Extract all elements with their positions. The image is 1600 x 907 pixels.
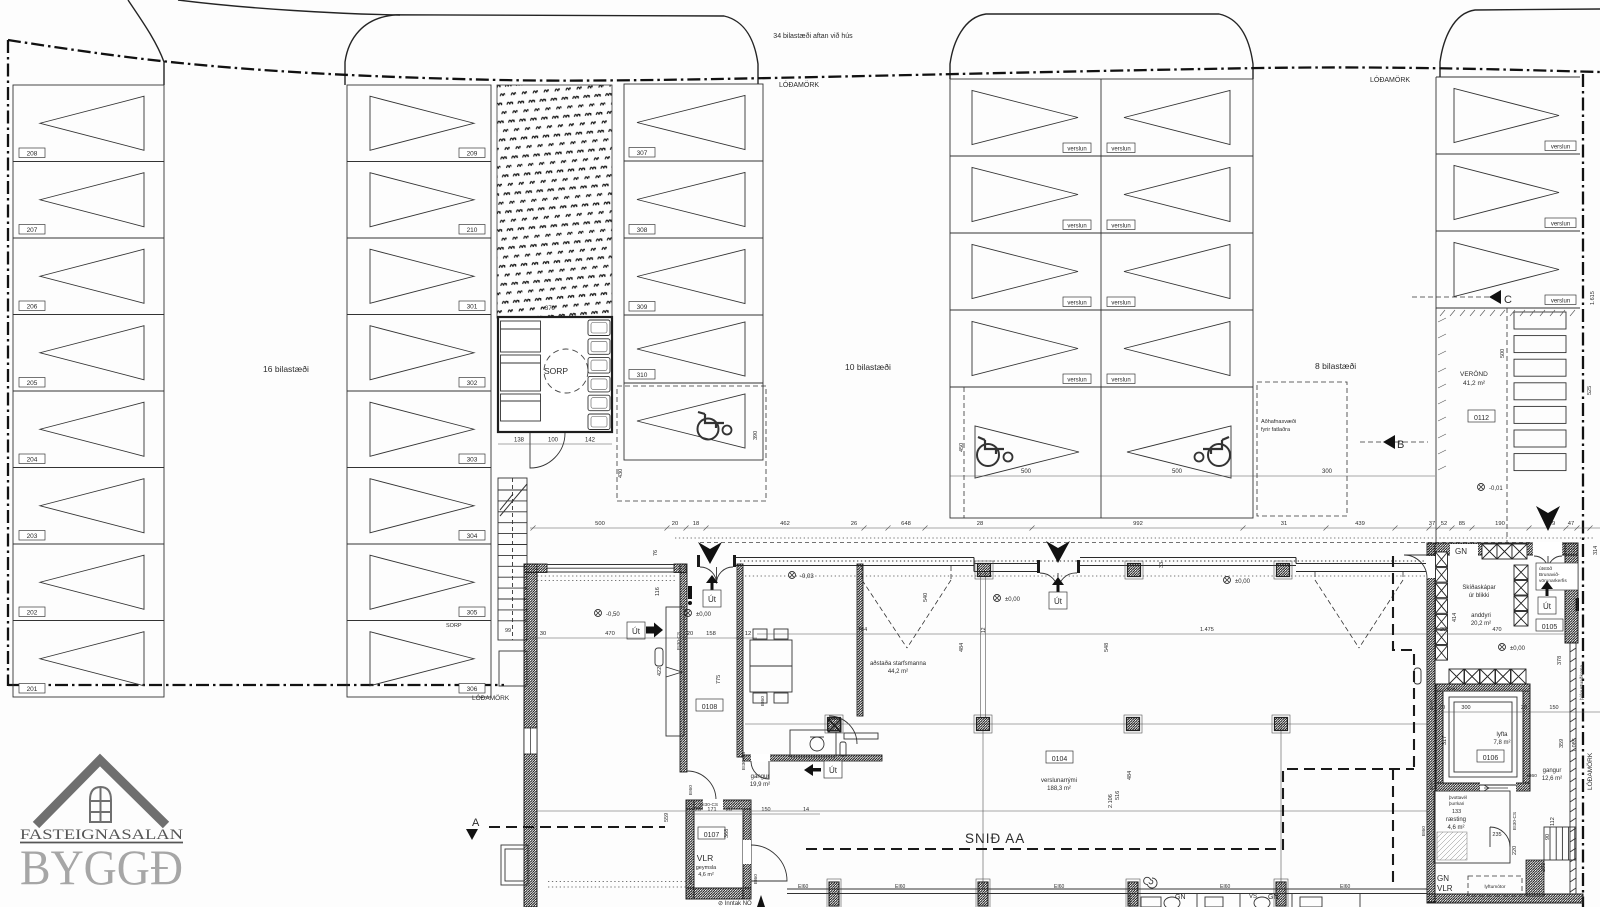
svg-text:VS: VS (1249, 894, 1257, 900)
svg-text:414: 414 (1452, 613, 1458, 622)
svg-text:SORP: SORP (544, 366, 568, 376)
svg-text:462: 462 (780, 521, 790, 527)
svg-text:378: 378 (1557, 656, 1563, 665)
svg-text:verslun: verslun (1111, 300, 1130, 306)
svg-text:8 bilastæði: 8 bilastæði (1315, 361, 1356, 371)
svg-text:203: 203 (27, 533, 38, 540)
svg-text:1.475: 1.475 (1200, 627, 1214, 633)
svg-text:47: 47 (1568, 521, 1574, 527)
svg-text:verslun: verslun (1111, 146, 1130, 152)
svg-text:20: 20 (1521, 705, 1527, 711)
svg-text:EI60: EI60 (753, 874, 759, 884)
svg-text:500: 500 (1500, 349, 1506, 358)
svg-text:309: 309 (637, 304, 648, 311)
svg-text:12,6 m²: 12,6 m² (1542, 776, 1562, 782)
svg-text:205: 205 (27, 380, 38, 387)
svg-text:310: 310 (637, 372, 648, 379)
svg-text:SORP: SORP (446, 623, 462, 629)
svg-text:484: 484 (959, 643, 965, 652)
svg-text:317: 317 (1442, 736, 1448, 745)
svg-text:300: 300 (1322, 469, 1333, 475)
svg-text:500: 500 (595, 521, 605, 527)
svg-text:306: 306 (467, 686, 478, 693)
svg-text:235: 235 (1492, 832, 1501, 838)
svg-text:EI60: EI60 (1429, 700, 1435, 710)
svg-text:100: 100 (548, 438, 559, 444)
svg-text:158: 158 (706, 631, 716, 637)
svg-text:4,6 m²: 4,6 m² (1447, 825, 1464, 831)
svg-text:784: 784 (858, 627, 867, 633)
svg-text:390: 390 (753, 431, 759, 440)
svg-text:verslun: verslun (1551, 298, 1570, 304)
svg-text:430: 430 (618, 469, 624, 478)
svg-text:fyrir fatlaðra: fyrir fatlaðra (1261, 426, 1291, 433)
svg-text:-0,01: -0,01 (1489, 486, 1503, 492)
svg-text:úr blikki: úr blikki (1469, 593, 1489, 599)
svg-text:LÓÐAMÖRK: LÓÐAMÖRK (779, 80, 819, 89)
svg-text:470: 470 (1492, 627, 1501, 633)
svg-text:LÓÐAMÖRK: LÓÐAMÖRK (1585, 752, 1594, 790)
svg-text:EI60: EI60 (1340, 884, 1351, 890)
svg-text:150: 150 (1549, 705, 1558, 711)
svg-text:10 bilastæði: 10 bilastæði (845, 362, 891, 372)
svg-text:EI60: EI60 (1421, 826, 1427, 836)
svg-text:142: 142 (585, 438, 596, 444)
svg-text:188,3 m²: 188,3 m² (1047, 786, 1071, 792)
svg-text:EI60: EI60 (1220, 884, 1231, 890)
svg-text:648: 648 (901, 521, 911, 527)
svg-text:305: 305 (467, 609, 478, 616)
svg-text:76: 76 (653, 550, 659, 556)
svg-text:SNIÐ AA: SNIÐ AA (965, 831, 1025, 846)
svg-text:500: 500 (1021, 469, 1032, 475)
svg-text:EI30-CS: EI30-CS (741, 752, 747, 770)
svg-text:20: 20 (695, 807, 701, 813)
svg-text:20: 20 (1440, 627, 1446, 633)
svg-text:301: 301 (467, 303, 478, 310)
svg-text:31: 31 (1281, 521, 1287, 527)
svg-text:37: 37 (1429, 521, 1435, 527)
svg-text:lyftumótor: lyftumótor (1484, 884, 1505, 890)
svg-text:útstöð: útstöð (1539, 565, 1552, 572)
svg-text:Út: Út (829, 766, 838, 775)
svg-text:EI60: EI60 (1447, 686, 1457, 692)
svg-text:992: 992 (1133, 521, 1143, 527)
svg-text:Út: Út (708, 595, 717, 604)
svg-text:525: 525 (1587, 386, 1593, 395)
svg-text:116: 116 (655, 587, 661, 596)
svg-text:EI60: EI60 (760, 696, 766, 706)
svg-text:verslun: verslun (1551, 144, 1570, 150)
svg-text:359: 359 (1559, 739, 1565, 748)
svg-text:EI60: EI60 (1429, 780, 1435, 790)
svg-text:verslunarrými: verslunarrými (1041, 778, 1077, 784)
svg-text:C: C (1504, 294, 1512, 306)
svg-text:439: 439 (1355, 521, 1365, 527)
svg-text:204: 204 (27, 456, 38, 463)
svg-text:þvottavél: þvottavél (1449, 795, 1467, 800)
svg-text:B: B (1397, 439, 1404, 451)
svg-text:12: 12 (745, 631, 751, 637)
svg-text:150: 150 (761, 807, 770, 813)
svg-text:209: 209 (467, 150, 478, 157)
svg-text:verslun: verslun (1067, 377, 1086, 383)
svg-text:þjónustuaðkoma: þjónustuaðkoma (1578, 664, 1585, 700)
svg-text:Skíðaskápar: Skíðaskápar (1462, 584, 1495, 591)
svg-text:þurrkari: þurrkari (1449, 801, 1464, 806)
svg-text:GN: GN (1437, 874, 1449, 883)
svg-text:VLR: VLR (1437, 884, 1453, 893)
svg-text:0107: 0107 (704, 832, 720, 839)
svg-text:GN: GN (1175, 894, 1186, 901)
svg-text:1.615: 1.615 (1590, 291, 1596, 305)
svg-text:775: 775 (716, 675, 722, 684)
svg-text:VLR: VLR (697, 853, 714, 863)
svg-text:EI60: EI60 (1054, 884, 1065, 890)
svg-text:vörunarkerfis: vörunarkerfis (1539, 578, 1567, 584)
svg-text:⊘ Inntak NO: ⊘ Inntak NO (718, 901, 752, 907)
svg-text:ræsting: ræsting (1446, 817, 1466, 823)
svg-text:85: 85 (1459, 521, 1465, 527)
svg-text:verslun: verslun (1067, 146, 1086, 152)
svg-text:Út: Út (632, 627, 641, 636)
svg-text:Út: Út (1543, 602, 1552, 611)
svg-text:A: A (472, 817, 480, 829)
svg-text:EI60: EI60 (798, 884, 809, 890)
svg-text:GN: GN (1268, 894, 1279, 901)
svg-text:0106: 0106 (1483, 755, 1499, 762)
svg-text:379: 379 (545, 306, 556, 312)
svg-text:Út: Út (1054, 597, 1063, 606)
svg-text:368: 368 (724, 829, 730, 838)
svg-text:20,2 m²: 20,2 m² (1471, 621, 1491, 627)
svg-text:20: 20 (726, 807, 732, 813)
svg-text:0104: 0104 (1052, 756, 1068, 763)
svg-text:207: 207 (27, 227, 38, 234)
svg-text:202: 202 (27, 609, 38, 616)
svg-text:20: 20 (687, 631, 693, 637)
svg-text:20: 20 (1439, 705, 1445, 711)
svg-text:90: 90 (1545, 834, 1551, 840)
svg-text:4,6 m²: 4,6 m² (698, 872, 714, 878)
svg-text:220: 220 (1512, 846, 1518, 855)
svg-text:verslun: verslun (1111, 377, 1130, 383)
svg-text:20: 20 (672, 521, 678, 527)
svg-text:Brunavið-: Brunavið- (1539, 571, 1560, 578)
svg-text:GN: GN (1455, 547, 1467, 556)
svg-text:-0,50: -0,50 (606, 612, 620, 618)
svg-text:422: 422 (657, 667, 663, 676)
svg-text:verslun: verslun (1111, 223, 1130, 229)
svg-text:EI30-CS: EI30-CS (1512, 812, 1518, 830)
svg-text:geymsla: geymsla (696, 865, 717, 871)
svg-text:190: 190 (1495, 521, 1505, 527)
svg-text:EI60: EI60 (1527, 773, 1537, 779)
svg-text:559: 559 (664, 813, 670, 822)
svg-text:±0,00: ±0,00 (1510, 646, 1526, 652)
svg-text:gangur: gangur (751, 774, 770, 780)
svg-text:302: 302 (467, 380, 478, 387)
svg-text:±0,00: ±0,00 (1235, 579, 1251, 585)
svg-text:52: 52 (1441, 521, 1447, 527)
svg-text:307: 307 (637, 150, 648, 157)
svg-text:LÓÐAMÖRK: LÓÐAMÖRK (1370, 75, 1410, 84)
svg-text:EI30-CS: EI30-CS (676, 632, 682, 650)
svg-text:7,8 m²: 7,8 m² (1493, 740, 1510, 746)
svg-text:516: 516 (1115, 791, 1121, 800)
svg-text:0108: 0108 (702, 704, 718, 711)
svg-text:18: 18 (693, 521, 699, 527)
svg-text:540: 540 (923, 593, 929, 602)
svg-text:34 bilastæði aftan við hús: 34 bilastæði aftan við hús (773, 32, 853, 40)
svg-text:gangur: gangur (1543, 768, 1562, 774)
svg-text:verslun: verslun (1551, 221, 1570, 227)
svg-text:14: 14 (803, 807, 809, 813)
svg-text:-0,03: -0,03 (800, 574, 814, 580)
svg-text:19,9 m²: 19,9 m² (750, 782, 770, 788)
svg-text:470: 470 (605, 631, 615, 637)
svg-text:99: 99 (505, 628, 511, 634)
svg-text:26: 26 (851, 521, 857, 527)
svg-text:133: 133 (1452, 809, 1461, 815)
svg-text:304: 304 (467, 533, 478, 540)
svg-text:verslun: verslun (1067, 300, 1086, 306)
svg-text:206: 206 (27, 303, 38, 310)
svg-text:28: 28 (977, 521, 983, 527)
svg-text:314: 314 (1593, 546, 1599, 555)
svg-text:500: 500 (1172, 469, 1183, 475)
svg-text:33: 33 (1159, 562, 1165, 568)
svg-text:548: 548 (1104, 643, 1110, 652)
svg-text:303: 303 (467, 456, 478, 463)
svg-text:0105: 0105 (1542, 624, 1558, 631)
svg-text:±0,00: ±0,00 (1005, 597, 1021, 603)
svg-text:308: 308 (637, 227, 648, 234)
svg-text:484: 484 (1127, 771, 1133, 780)
svg-text:12: 12 (981, 627, 987, 633)
svg-text:EI60: EI60 (688, 874, 694, 884)
svg-text:41,2 m²: 41,2 m² (1463, 380, 1486, 387)
svg-text:lyfta: lyfta (1496, 732, 1508, 738)
svg-text:450: 450 (959, 443, 965, 452)
svg-text:BYGGÐ: BYGGÐ (20, 839, 183, 895)
svg-text:201: 201 (27, 686, 38, 693)
svg-text:210: 210 (467, 227, 478, 234)
svg-text:16 bilastæði: 16 bilastæði (263, 364, 309, 374)
svg-text:aðstaða starfsmanna: aðstaða starfsmanna (870, 660, 927, 667)
svg-text:30: 30 (540, 631, 546, 637)
svg-text:VERÖND: VERÖND (1460, 370, 1488, 378)
svg-text:0112: 0112 (1474, 415, 1489, 422)
svg-text:138: 138 (514, 438, 525, 444)
svg-text:±0,00: ±0,00 (696, 612, 712, 618)
svg-text:171: 171 (707, 807, 716, 813)
svg-text:108: 108 (1541, 863, 1547, 872)
svg-text:2.106: 2.106 (1108, 794, 1114, 808)
svg-text:112: 112 (1550, 817, 1556, 826)
svg-text:EI60: EI60 (895, 884, 906, 890)
svg-text:44,2 m²: 44,2 m² (888, 669, 908, 675)
svg-text:anddyri: anddyri (1471, 613, 1491, 619)
svg-text:EI60: EI60 (688, 785, 694, 795)
svg-text:300: 300 (1461, 705, 1470, 711)
svg-text:208: 208 (27, 150, 38, 157)
svg-text:verslun: verslun (1067, 223, 1086, 229)
svg-text:Aðhafnasvæði: Aðhafnasvæði (1261, 418, 1296, 425)
